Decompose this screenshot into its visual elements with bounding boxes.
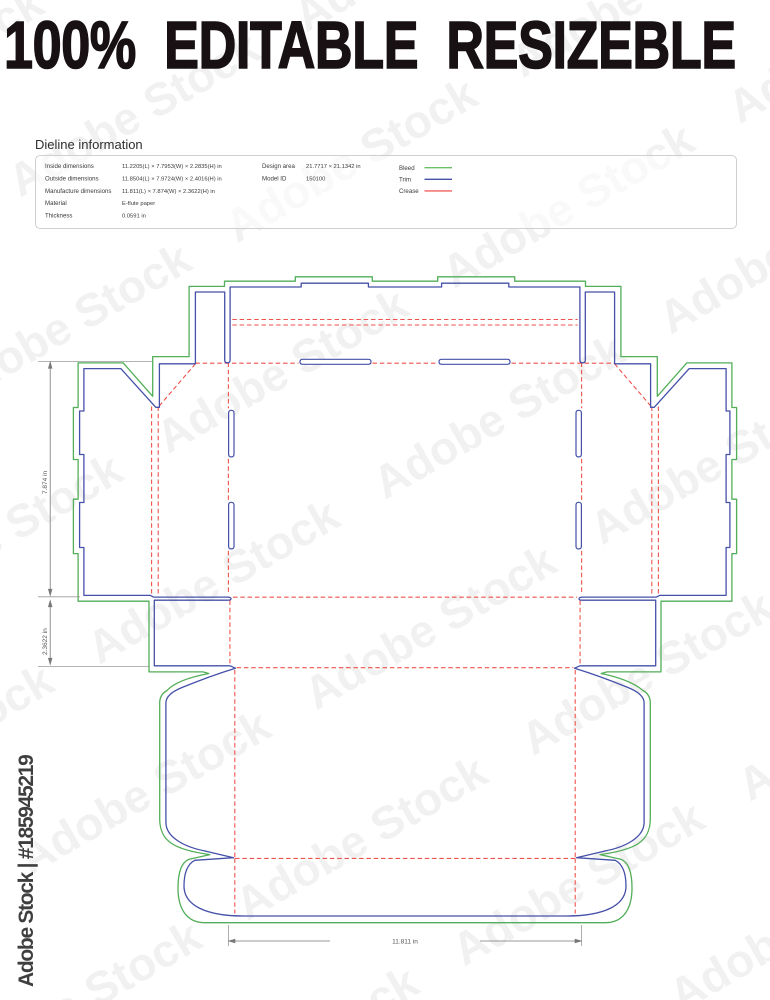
svg-text:11.811 in: 11.811 in xyxy=(392,938,418,945)
svg-text:2.3622 in: 2.3622 in xyxy=(42,628,49,655)
svg-text:7.874 in: 7.874 in xyxy=(42,470,49,494)
